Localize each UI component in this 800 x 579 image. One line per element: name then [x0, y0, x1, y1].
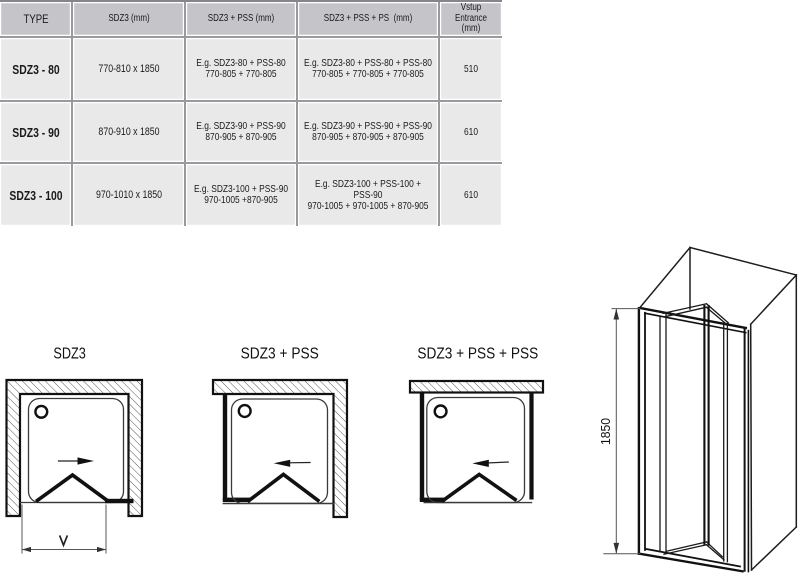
svg-text:SDZ3: SDZ3: [53, 346, 86, 363]
svg-text:SDZ3 + PSS: SDZ3 + PSS: [241, 346, 319, 363]
svg-text:SDZ3 + PSS + PSS: SDZ3 + PSS + PSS: [417, 346, 538, 363]
svg-text:1850: 1850: [598, 418, 613, 445]
